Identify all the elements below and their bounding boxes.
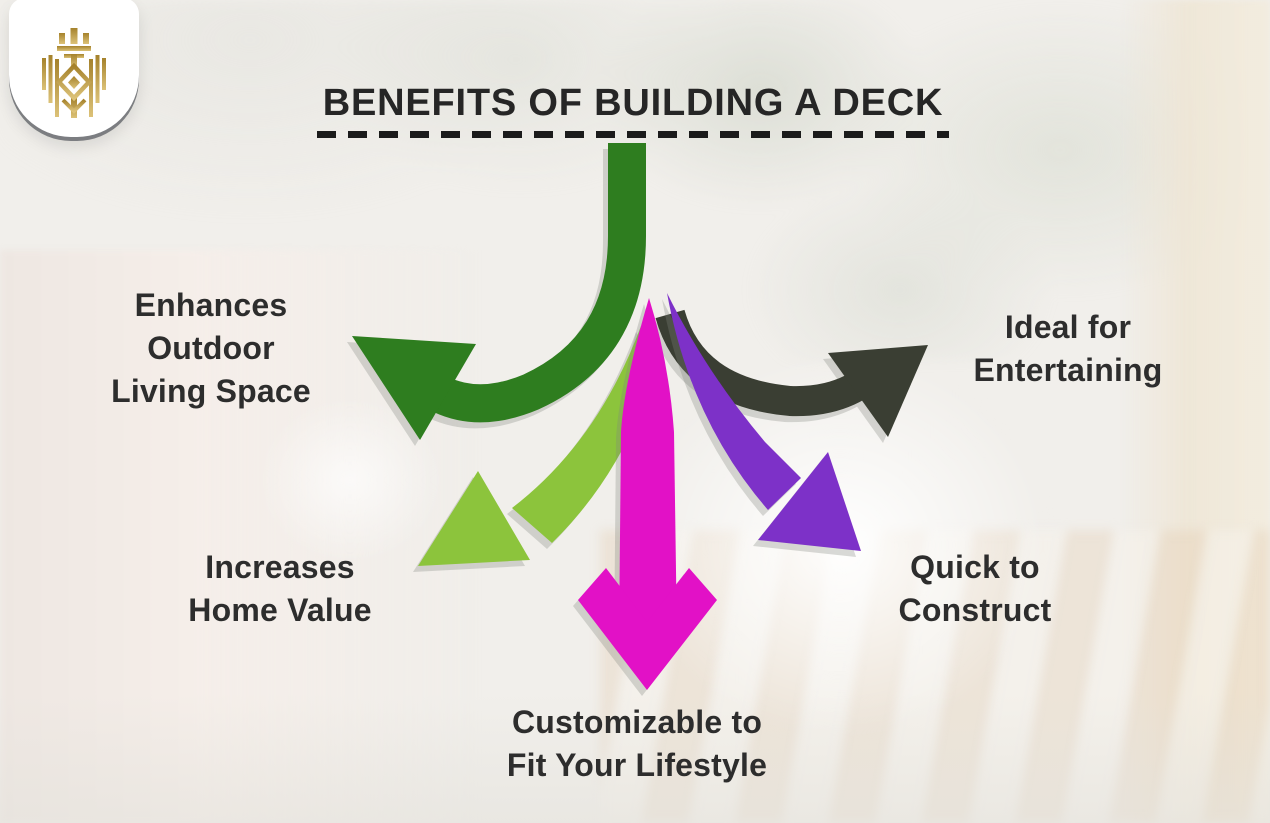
arrow-quick-to-construct xyxy=(667,293,861,551)
benefit-label-quick-to-construct: Quick to Construct xyxy=(899,546,1052,632)
benefit-label-enhances-outdoor-living-space: Enhances Outdoor Living Space xyxy=(111,284,311,413)
arrow-enhances-outdoor-living-space xyxy=(352,143,627,440)
benefit-label-customizable-lifestyle: Customizable to Fit Your Lifestyle xyxy=(507,701,767,787)
benefit-label-ideal-for-entertaining: Ideal for Entertaining xyxy=(973,306,1162,392)
benefit-label-increases-home-value: Increases Home Value xyxy=(188,546,371,632)
